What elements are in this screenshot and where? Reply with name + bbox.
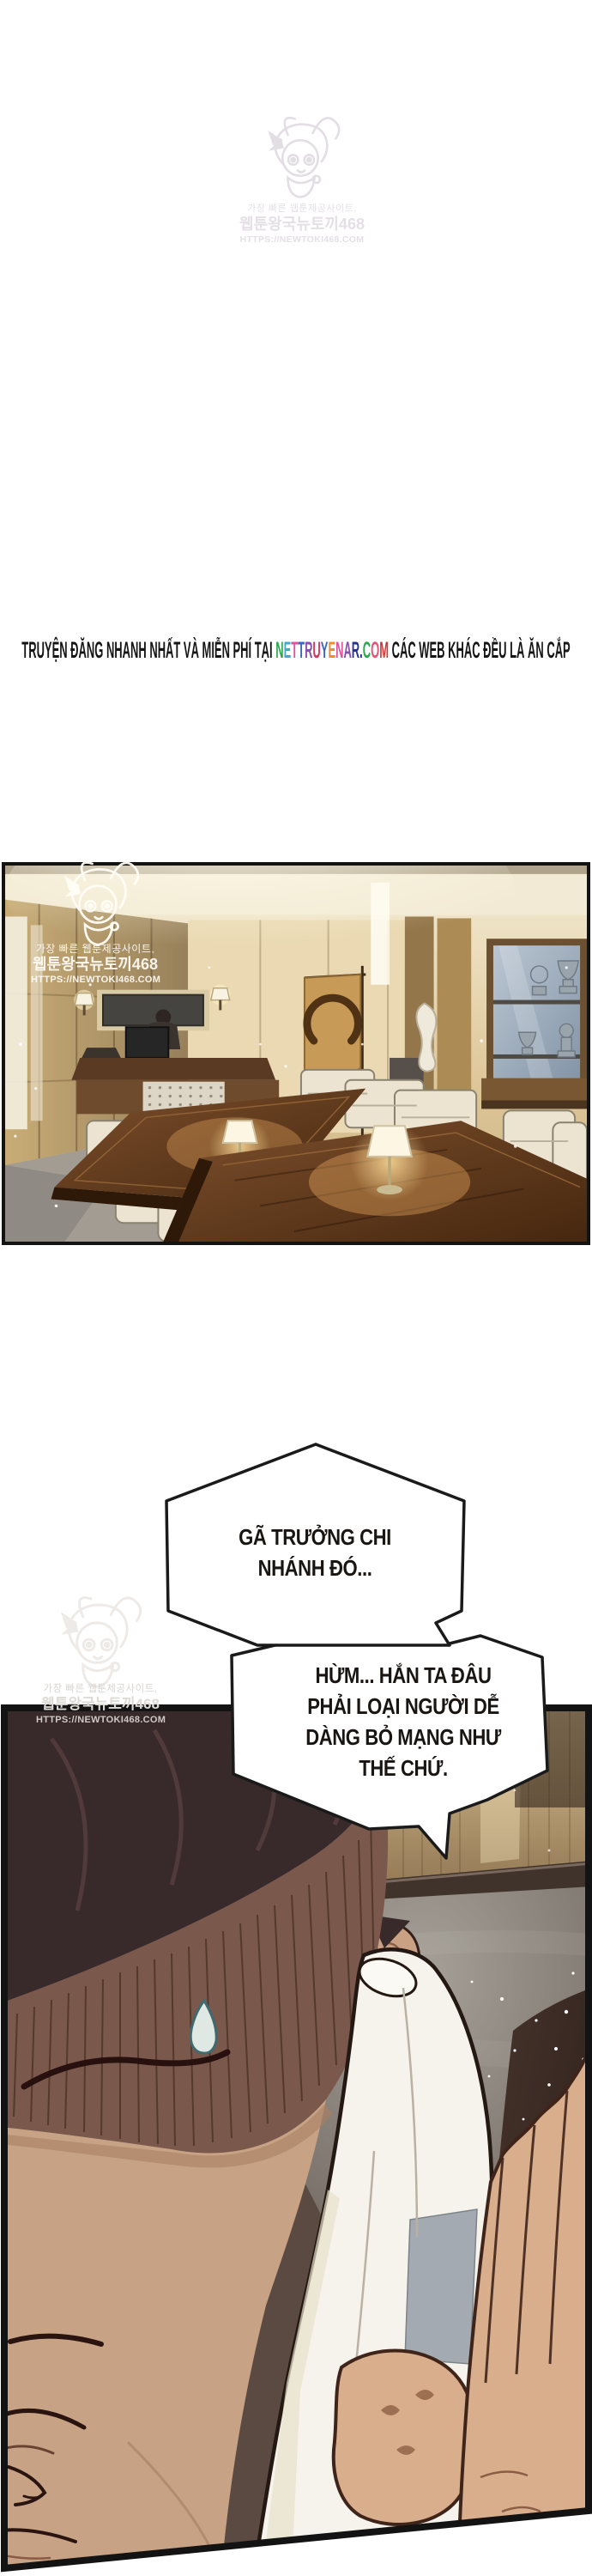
- trophy-case: [481, 939, 587, 1109]
- banner-prefix: TRUYỆN ĐĂNG NHANH NHẤT VÀ MIỄN PHÍ TẠI: [21, 637, 275, 663]
- table-lamp: [350, 1122, 428, 1200]
- watermark-line: HTTPS://NEWTOKI468.COM: [238, 234, 366, 246]
- watermark-line: 웹툰왕국뉴토끼468: [238, 215, 366, 234]
- chibi-mascot-icon: [45, 1587, 149, 1697]
- desk-laptop: [82, 1048, 121, 1058]
- phone-closeup-art: [0, 1704, 592, 2576]
- banner-site-name: NETTRUYENAR.COM: [275, 637, 389, 663]
- speech-bubble-1-text: GÃ TRƯỞNG CHI NHÁNH ĐÓ...: [193, 1522, 437, 1583]
- bubble-line: NHÁNH ĐÓ...: [193, 1552, 437, 1583]
- panel-phone-closeup: [0, 1704, 592, 2576]
- bubble-line: HỪM... HẮN TA ĐÂU: [294, 1660, 513, 1691]
- site-watermark-top: 가장 빠른 웹툰제공사이트, 웹툰왕국뉴토끼468 HTTPS://NEWTOK…: [238, 203, 366, 246]
- chibi-mascot-icon: [256, 108, 345, 206]
- webtoon-reader-page: 가장 빠른 웹툰제공사이트, 웹툰왕국뉴토끼468 HTTPS://NEWTOK…: [0, 0, 592, 2576]
- banner-suffix: CÁC WEB KHÁC ĐỀU LÀ ĂN CẮP: [389, 637, 571, 663]
- bubble-line: GÃ TRƯỞNG CHI: [193, 1522, 437, 1552]
- office-desk: [71, 1058, 275, 1080]
- site-banner-text: TRUYỆN ĐĂNG NHANH NHẤT VÀ MIỄN PHÍ TẠI N…: [21, 637, 570, 663]
- bubble-line: DÀNG BỎ MẠNG NHƯ: [294, 1722, 513, 1753]
- desk-monitor: [126, 1027, 169, 1058]
- bubble-line: PHẢI LOẠI NGƯỜI DỄ: [294, 1691, 513, 1722]
- presentation-screen: [103, 995, 203, 1026]
- speech-bubble-2-text: HỪM... HẮN TA ĐÂU PHẢI LOẠI NGƯỜI DỄ DÀN…: [294, 1660, 513, 1783]
- chibi-mascot-icon: [50, 853, 146, 954]
- bubble-line: THẾ CHỨ.: [294, 1753, 513, 1783]
- holding-hand: [334, 2350, 475, 2524]
